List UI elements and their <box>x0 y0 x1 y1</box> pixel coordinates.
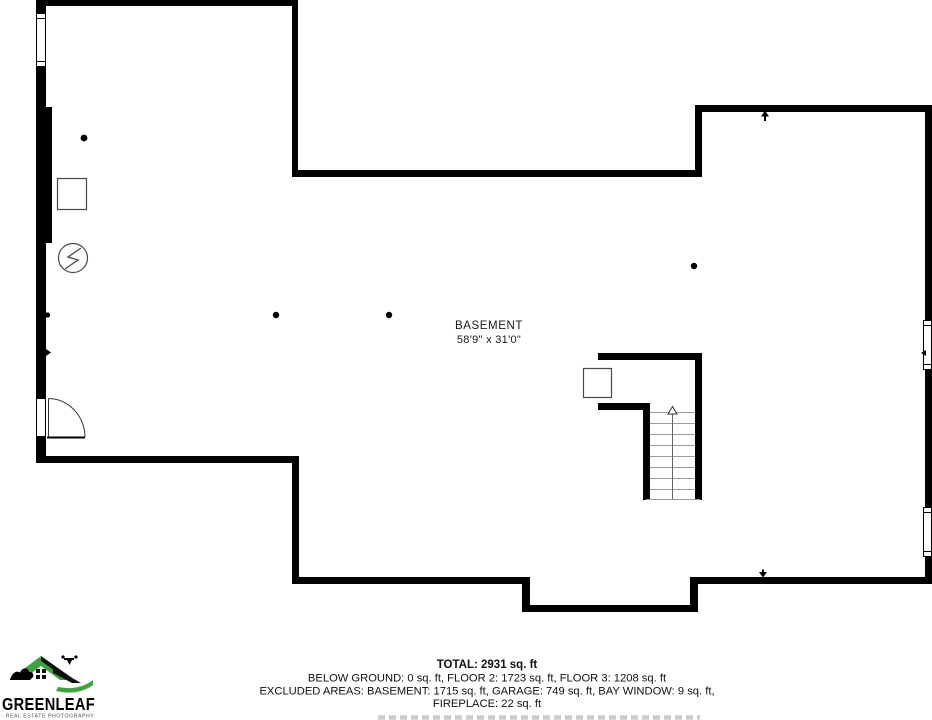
wall-segment <box>695 353 702 500</box>
stair-walls <box>598 353 702 500</box>
down-tick-icon <box>759 570 767 578</box>
wall-segment <box>695 105 932 112</box>
up-tick-icon <box>761 111 769 122</box>
marker-dot <box>273 312 279 318</box>
window-left <box>37 14 46 67</box>
wall-segment <box>36 0 298 6</box>
logo-drone-icon <box>61 655 77 665</box>
window-right-upper <box>924 321 932 370</box>
floorplan-drawing: BASEMENT 58'9" x 31'0" TOTAL: 2931 sq. f… <box>0 0 932 720</box>
circle-lightning-icon <box>59 244 88 273</box>
greenleaf-logo: GREENLEAF REAL ESTATE PHOTOGRAPHY <box>2 655 95 719</box>
marker-dot <box>45 312 50 317</box>
wall-segment <box>36 0 46 14</box>
marker-dot <box>81 135 88 142</box>
door-swing-arc-icon <box>37 399 86 438</box>
window-right-lower <box>924 508 932 557</box>
floorplan-page: BASEMENT 58'9" x 31'0" TOTAL: 2931 sq. f… <box>0 0 932 720</box>
wall-segment <box>695 105 702 177</box>
wall-segment <box>292 577 530 584</box>
wall-segment <box>292 0 298 177</box>
logo-name: GREENLEAF <box>2 694 95 714</box>
wall-segment <box>36 456 298 463</box>
wall-segment <box>925 557 932 583</box>
wall-segment <box>925 370 932 507</box>
square-fixture-icon <box>58 179 87 210</box>
wall-segment <box>292 170 702 177</box>
wall-segment <box>292 456 299 584</box>
room-dimensions: 58'9" x 31'0" <box>457 334 521 346</box>
area-summary: TOTAL: 2931 sq. ft BELOW GROUND: 0 sq. f… <box>259 659 714 718</box>
wall-segment <box>522 605 698 612</box>
wall-segment-thick <box>46 107 52 243</box>
room-label: BASEMENT <box>455 320 523 332</box>
right-tick-icon <box>46 349 51 356</box>
wall-segment <box>36 67 46 398</box>
summary-excluded: EXCLUDED AREAS: BASEMENT: 1715 sq. ft, G… <box>259 686 714 698</box>
wall-segment <box>690 577 932 584</box>
summary-total: TOTAL: 2931 sq. ft <box>437 659 538 671</box>
wall-segment <box>598 353 702 360</box>
up-arrow-icon <box>668 407 677 415</box>
exterior-walls <box>36 0 932 612</box>
marker-dot <box>386 312 392 318</box>
wall-segment <box>925 105 932 320</box>
logo-roof-right <box>53 667 81 683</box>
wall-segment <box>643 403 650 500</box>
wall-segment <box>598 403 650 410</box>
square-fixture-icon <box>584 369 612 398</box>
staircase <box>646 407 700 500</box>
logo-tagline: REAL ESTATE PHOTOGRAPHY <box>6 714 95 720</box>
marker-dot <box>691 263 697 269</box>
summary-excluded-cont: FIREPLACE: 22 sq. ft <box>433 698 542 710</box>
summary-floors: BELOW GROUND: 0 sq. ft, FLOOR 2: 1723 sq… <box>308 673 667 685</box>
